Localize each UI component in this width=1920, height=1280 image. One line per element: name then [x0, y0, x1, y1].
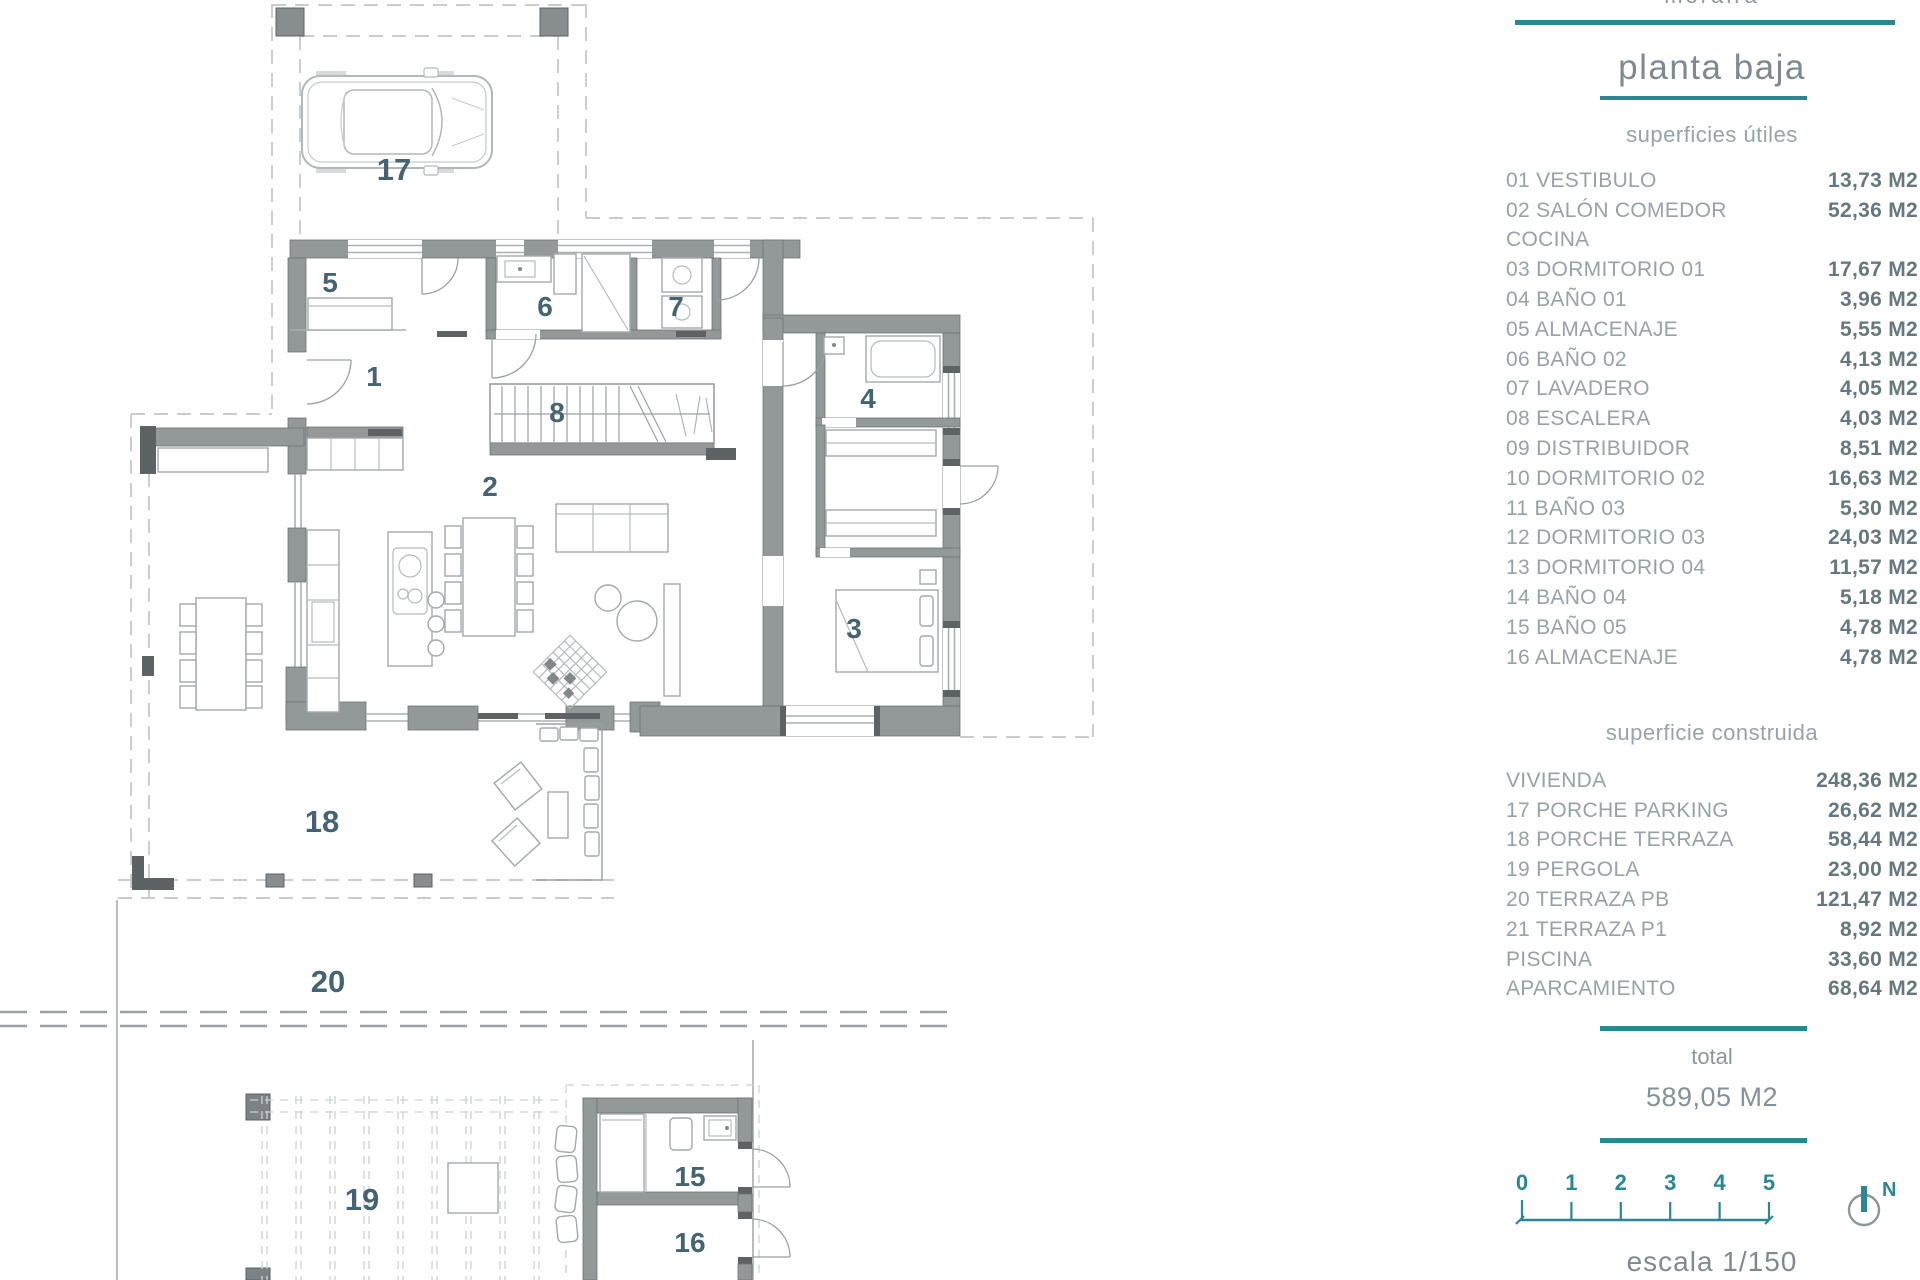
area-row-label: 06 BAÑO 02 — [1506, 348, 1627, 372]
living-furniture — [533, 504, 680, 709]
area-row: 14 BAÑO 04 5,18 M2 — [1506, 583, 1918, 613]
area-row: 12 DORMITORIO 03 24,03 M2 — [1506, 524, 1918, 554]
area-row: 19 PERGOLA 23,00 M2 — [1506, 855, 1918, 885]
terrace-pillar-left — [142, 656, 154, 676]
area-row-label: 12 DORMITORIO 03 — [1506, 526, 1705, 550]
built-areas-heading: superficie construida — [1506, 720, 1918, 746]
area-row-value: 4,78 M2 — [1840, 646, 1918, 670]
area-row: 18 PORCHE TERRAZA 58,44 M2 — [1506, 826, 1918, 856]
room-label-3: 3 — [846, 613, 862, 644]
area-row-value: 4,05 M2 — [1840, 377, 1918, 401]
area-row-value: 248,36 M2 — [1816, 769, 1918, 793]
area-row-label: 07 LAVADERO — [1506, 377, 1650, 401]
area-row-value: 11,57 M2 — [1829, 556, 1918, 580]
outdoor-dining — [180, 598, 262, 710]
area-row-label: 19 PERGOLA — [1506, 858, 1640, 882]
area-row-value: 26,62 M2 — [1828, 799, 1918, 823]
area-row-label: 18 PORCHE TERRAZA — [1506, 828, 1734, 852]
room-label-1: 1 — [366, 361, 382, 392]
compass-north-label: N — [1882, 1179, 1896, 1201]
area-row: 21 TERRAZA P1 8,92 M2 — [1506, 915, 1918, 945]
area-row: PISCINA 33,60 M2 — [1506, 945, 1918, 975]
total-rule-top — [1600, 1026, 1807, 1031]
area-row-value: 4,03 M2 — [1840, 407, 1918, 431]
area-row-label: 10 DORMITORIO 02 — [1506, 467, 1705, 491]
scale-tick-3: 3 — [1664, 1170, 1676, 1195]
scale-tick-0: 0 — [1516, 1170, 1528, 1195]
area-row: 02 SALÓN COMEDOR 52,36 M2 — [1506, 196, 1918, 226]
title-underline — [1600, 96, 1807, 100]
total-value: 589,05 M2 — [1506, 1082, 1918, 1113]
area-row: COCINA — [1506, 226, 1918, 256]
area-row-value: 5,55 M2 — [1840, 318, 1918, 342]
terrace18 — [132, 598, 602, 890]
top-rule — [1515, 20, 1895, 25]
kitchen-furniture — [307, 438, 444, 712]
area-row-label: 03 DORMITORIO 01 — [1506, 258, 1705, 282]
area-row: 08 ESCALERA 4,03 M2 — [1506, 404, 1918, 434]
area-row: 01 VESTIBULO 13,73 M2 — [1506, 166, 1918, 196]
area-row: 03 DORMITORIO 01 17,67 M2 — [1506, 255, 1918, 285]
area-row-value: 5,30 M2 — [1840, 497, 1918, 521]
area-row-label: 15 BAÑO 05 — [1506, 616, 1627, 640]
room-label-4: 4 — [860, 383, 876, 414]
area-row-label: 09 DISTRIBUIDOR — [1506, 437, 1690, 461]
room-label-18: 18 — [305, 804, 339, 839]
area-row-label: 11 BAÑO 03 — [1506, 497, 1625, 521]
area-row: 20 TERRAZA PB 121,47 M2 — [1506, 885, 1918, 915]
room-label-8: 8 — [549, 397, 565, 428]
loungers — [554, 1125, 578, 1243]
scale-tick-5: 5 — [1763, 1170, 1775, 1195]
area-row: 09 DISTRIBUIDOR 8,51 M2 — [1506, 434, 1918, 464]
room-label-17: 17 — [377, 152, 411, 187]
total-label: total — [1506, 1044, 1918, 1070]
north-compass-icon: N — [1836, 1170, 1902, 1232]
area-row-label: COCINA — [1506, 228, 1589, 252]
area-row-value: 8,92 M2 — [1840, 918, 1918, 942]
area-row-value: 4,78 M2 — [1840, 616, 1918, 640]
closets — [826, 430, 936, 536]
floorplan-drawing: 1 2 3 4 5 6 7 8 15 16 17 18 19 20 — [0, 0, 1150, 1280]
scale-caption: escala 1/150 — [1506, 1246, 1918, 1278]
area-row-value: 52,36 M2 — [1828, 199, 1918, 223]
page-title: planta baja — [1506, 48, 1918, 88]
useful-areas-table: 01 VESTIBULO 13,73 M2 02 SALÓN COMEDOR 5… — [1506, 166, 1918, 673]
room15-fixtures — [600, 1113, 736, 1192]
room-label-19: 19 — [345, 1182, 379, 1217]
area-row: 17 PORCHE PARKING 26,62 M2 — [1506, 796, 1918, 826]
area-row-label: 02 SALÓN COMEDOR — [1506, 199, 1727, 223]
area-row-label: 16 ALMACENAJE — [1506, 646, 1678, 670]
project-name-clipped: moraira — [1506, 0, 1918, 9]
area-row: 15 BAÑO 05 4,78 M2 — [1506, 613, 1918, 643]
scale-tick-1: 1 — [1565, 1170, 1577, 1195]
project-name: moraira — [1506, 0, 1918, 7]
area-row: 04 BAÑO 01 3,96 M2 — [1506, 285, 1918, 315]
area-row-value: 121,47 M2 — [1816, 888, 1918, 912]
area-row-value: 68,64 M2 — [1828, 977, 1918, 1001]
area-row: VIVIENDA 248,36 M2 — [1506, 766, 1918, 796]
room-label-7: 7 — [668, 291, 684, 322]
area-row: APARCAMIENTO 68,64 M2 — [1506, 975, 1918, 1005]
area-row-value: 17,67 M2 — [1828, 258, 1918, 282]
area-row-value: 13,73 M2 — [1828, 169, 1918, 193]
dining-furniture — [445, 518, 533, 636]
area-row-value: 58,44 M2 — [1828, 828, 1918, 852]
useful-areas-heading: superficies útiles — [1506, 122, 1918, 148]
area-row: 13 DORMITORIO 04 11,57 M2 — [1506, 553, 1918, 583]
area-row-value: 24,03 M2 — [1828, 526, 1918, 550]
rug — [533, 635, 607, 709]
porch-pillar-left — [276, 8, 304, 36]
legend-panel: moraira planta baja superficies útiles 0… — [1506, 0, 1918, 1280]
area-row-value: 4,13 M2 — [1840, 348, 1918, 372]
area-row: 10 DORMITORIO 02 16,63 M2 — [1506, 464, 1918, 494]
area-row-label: 14 BAÑO 04 — [1506, 586, 1627, 610]
area-row: 07 LAVADERO 4,05 M2 — [1506, 375, 1918, 405]
scale-bar: 0 1 2 3 4 5 — [1506, 1162, 1806, 1228]
area-row-label: 01 VESTIBULO — [1506, 169, 1657, 193]
bath6-fixtures — [497, 254, 630, 332]
area-row-value: 33,60 M2 — [1828, 948, 1918, 972]
porch-pillar-right — [540, 8, 568, 36]
area-row: 11 BAÑO 03 5,30 M2 — [1506, 494, 1918, 524]
area-row-value: 23,00 M2 — [1828, 858, 1918, 882]
room-label-2: 2 — [482, 471, 498, 502]
terrace20-lines — [0, 900, 952, 1280]
area-row-label: PISCINA — [1506, 948, 1592, 972]
area-row-label: 21 TERRAZA P1 — [1506, 918, 1667, 942]
room-label-20: 20 — [311, 964, 345, 999]
area-row-value: 5,18 M2 — [1840, 586, 1918, 610]
room-label-16: 16 — [674, 1227, 705, 1258]
scale-tick-4: 4 — [1713, 1170, 1726, 1195]
area-row-value: 3,96 M2 — [1840, 288, 1918, 312]
built-areas-table: VIVIENDA 248,36 M2 17 PORCHE PARKING 26,… — [1506, 766, 1918, 1004]
room-label-5: 5 — [322, 267, 338, 298]
area-row-value: 16,63 M2 — [1828, 467, 1918, 491]
area-row: 06 BAÑO 02 4,13 M2 — [1506, 345, 1918, 375]
area-row: 05 ALMACENAJE 5,55 M2 — [1506, 315, 1918, 345]
bath4-fixtures — [824, 336, 940, 382]
scale-tick-2: 2 — [1615, 1170, 1627, 1195]
total-rule-bottom — [1600, 1138, 1807, 1143]
area-row-label: 05 ALMACENAJE — [1506, 318, 1678, 342]
room-label-15: 15 — [674, 1161, 705, 1192]
area-row-value: 8,51 M2 — [1840, 437, 1918, 461]
area-row-label: APARCAMIENTO — [1506, 977, 1676, 1001]
room-label-6: 6 — [537, 291, 553, 322]
area-row-label: 04 BAÑO 01 — [1506, 288, 1627, 312]
porch-parking — [276, 8, 568, 175]
floorplan-sheet: 1 2 3 4 5 6 7 8 15 16 17 18 19 20 morair… — [0, 0, 1920, 1280]
room5-furniture — [308, 298, 392, 330]
area-row-label: 13 DORMITORIO 04 — [1506, 556, 1705, 580]
area-row-label: VIVIENDA — [1506, 769, 1606, 793]
area-row-label: 08 ESCALERA — [1506, 407, 1651, 431]
area-row: 16 ALMACENAJE 4,78 M2 — [1506, 643, 1918, 673]
area-row-label: 20 TERRAZA PB — [1506, 888, 1669, 912]
stairs — [490, 384, 714, 443]
area-row-label: 17 PORCHE PARKING — [1506, 799, 1729, 823]
